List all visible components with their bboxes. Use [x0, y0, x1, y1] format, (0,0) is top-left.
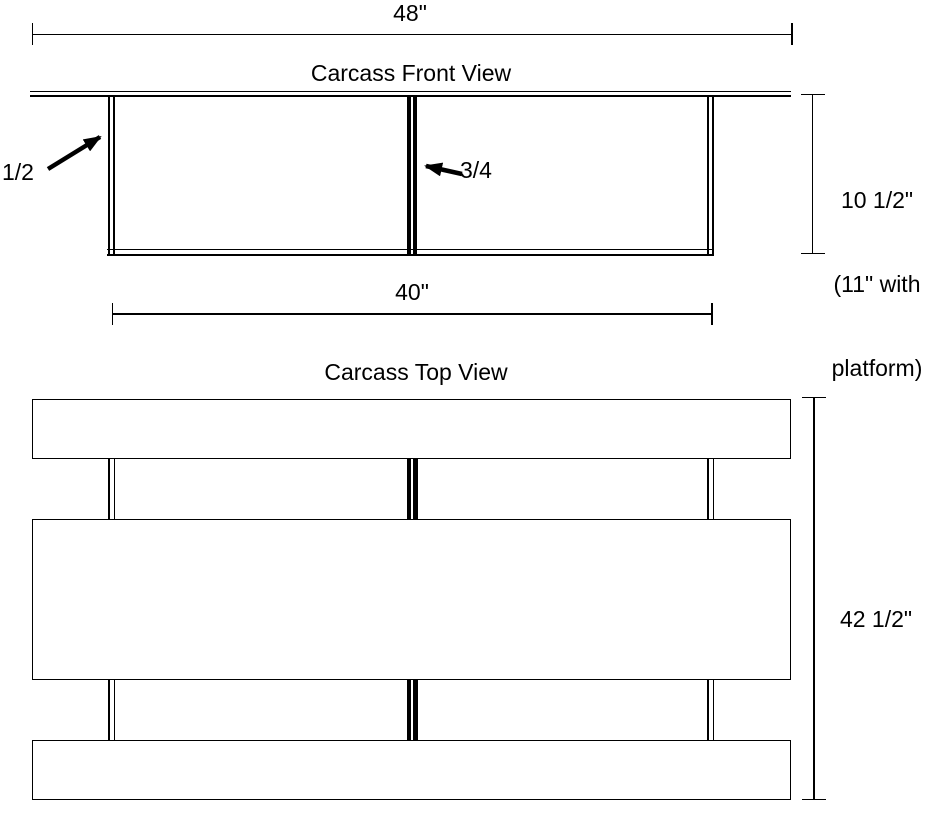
top-lower-right-panel-line-outer: [713, 679, 715, 740]
top-view-top-rail: [32, 399, 791, 459]
carcass-drawing: 48" Carcass Front View 1/2: [0, 0, 925, 823]
top-upper-left-panel-line-outer: [108, 458, 110, 520]
top-lower-left-panel-line-inner: [114, 679, 116, 740]
top-lower-center-divider-line-right: [413, 679, 418, 740]
top-lower-right-panel-line-inner: [707, 679, 709, 740]
top-upper-left-panel-line-inner: [114, 458, 116, 520]
top-lower-left-panel-line-outer: [108, 679, 110, 740]
top-upper-right-panel-line-outer: [713, 458, 715, 520]
top-view-middle-slab: [32, 519, 791, 680]
top-lower-center-divider-line-left: [407, 679, 412, 740]
top-view-bottom-rail: [32, 740, 791, 800]
top-upper-center-divider-line-left: [407, 458, 412, 520]
top-height-label: 42 1/2": [830, 605, 922, 633]
top-upper-right-panel-line-inner: [707, 458, 709, 520]
top-view: Carcass Top View 42 1/2": [0, 0, 925, 823]
top-upper-center-divider-line-right: [413, 458, 418, 520]
top-height-dimension-tick-bottom: [802, 799, 826, 801]
top-height-dimension-tick-top: [802, 397, 826, 399]
top-height-dimension-line: [813, 397, 815, 800]
top-view-title: Carcass Top View: [266, 358, 566, 386]
